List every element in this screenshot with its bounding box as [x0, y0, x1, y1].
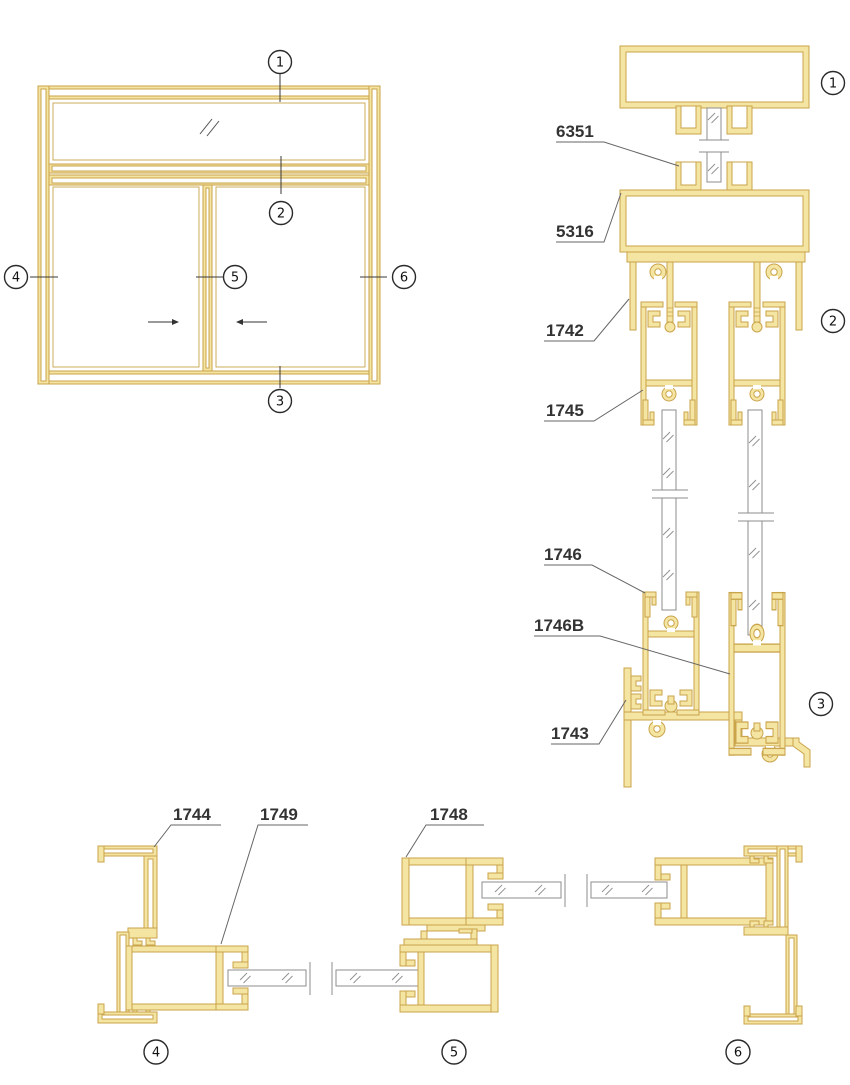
svg-text:4: 4: [152, 1046, 160, 1061]
leader-1746: [544, 565, 645, 593]
glass-pane: [707, 152, 721, 182]
section-2-detail: 1742 1745 2: [544, 252, 845, 635]
part-label-5316: 5316: [556, 222, 594, 241]
part-label-1746b: 1746B: [534, 616, 584, 635]
part-label-1746: 1746: [544, 545, 582, 564]
section-1-detail: 6351 5316 1: [556, 46, 845, 252]
section-marker-3-number: 3: [276, 395, 284, 410]
glass-pane: [748, 521, 762, 635]
svg-text:6: 6: [734, 1046, 742, 1061]
diagram-svg: 1 2 3 4 5 6: [0, 0, 850, 1085]
part-label-1743: 1743: [551, 724, 589, 743]
slide-arrow-right-sash: [236, 319, 267, 325]
part-label-1748: 1748: [430, 805, 468, 824]
part-5316-profile: [620, 190, 809, 252]
part-1748-profile: [400, 858, 503, 1012]
section-6-detail: 6: [655, 846, 802, 1064]
section-5-detail: 1748 5: [400, 805, 667, 1064]
section-marker-5-number: 5: [231, 271, 239, 286]
leader-1744: [154, 825, 221, 847]
part-label-1749: 1749: [260, 805, 298, 824]
section-marker-2-number: 2: [277, 207, 285, 222]
glass-pane: [482, 882, 561, 898]
section-marker-6-number: 6: [400, 271, 408, 286]
part-label-1744: 1744: [173, 805, 211, 824]
leader-1746b: [534, 636, 730, 674]
glass-pane: [591, 882, 667, 898]
svg-text:3: 3: [817, 698, 825, 713]
section-marker-1-number: 1: [276, 56, 284, 71]
part-label-6351: 6351: [556, 122, 594, 141]
leader-6351: [556, 142, 679, 166]
glass-pane: [748, 410, 762, 513]
part-label-1745: 1745: [546, 401, 584, 420]
section-marker-4-number: 4: [12, 271, 20, 286]
svg-text:2: 2: [829, 315, 837, 330]
sash-profile-right: [655, 858, 773, 925]
section-4-detail: 1744 1749 4: [98, 805, 418, 1064]
window-profile-diagram: 1 2 3 4 5 6: [0, 0, 850, 1085]
window-elevation: 1 2 3 4 5 6: [5, 51, 416, 413]
slide-arrow-left-sash: [148, 319, 179, 325]
leader-1748: [406, 825, 484, 857]
glass-pane: [228, 970, 306, 986]
glass-pane: [707, 108, 721, 140]
glass-pane: [662, 410, 676, 490]
leader-1749: [221, 825, 308, 944]
section-3-detail: 1746 1746B 1743 3: [534, 545, 833, 787]
glass-pane: [662, 498, 676, 610]
left-sash-outline: [53, 187, 199, 367]
svg-text:1: 1: [829, 77, 837, 92]
part-label-1742: 1742: [546, 321, 584, 340]
svg-text:5: 5: [450, 1046, 458, 1061]
fixed-glass-outline: [53, 103, 365, 160]
glass-pane: [336, 970, 418, 986]
